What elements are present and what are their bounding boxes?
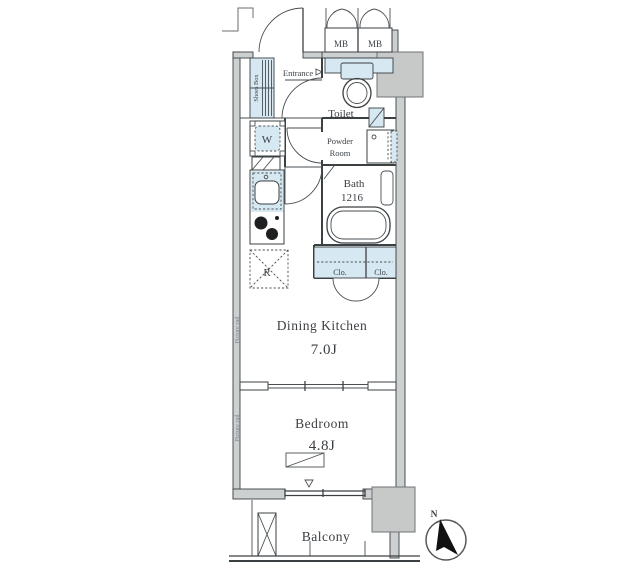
room-dining-kitchen: Dining Kitchen 7.0J — [277, 318, 368, 358]
front-door-swing-arc — [259, 8, 303, 52]
dining-kitchen-area-label: 7.0J — [311, 342, 338, 358]
bedroom-label: Bedroom — [295, 416, 349, 431]
powder-room: Powder Room — [327, 130, 397, 163]
closet-door-arc — [333, 278, 356, 301]
pillar-bottom-right — [372, 487, 415, 532]
hall-door-arc — [285, 167, 322, 204]
closet-door-arc — [356, 278, 379, 301]
balcony-partition-box — [258, 513, 276, 556]
washing-machine: W — [250, 121, 285, 156]
meter-box-right-label: MB — [368, 39, 382, 49]
meter-box-left-label: MB — [334, 39, 348, 49]
bath-counter — [381, 171, 393, 205]
kitchen-counter — [250, 170, 284, 244]
toilet-door-arc — [282, 78, 322, 118]
compass-north-label: N — [431, 510, 438, 520]
sliding-partition — [240, 381, 396, 391]
closet-right-label: Clo. — [374, 268, 388, 277]
kitchen-sink — [255, 181, 279, 204]
bath-label: Bath — [344, 178, 365, 190]
floor-plan-image: Entrance MB MB — [0, 0, 640, 569]
bath-door-leaf — [324, 166, 334, 179]
pipe-space-box — [252, 157, 280, 170]
closet-area: Clo. Clo. — [314, 247, 396, 301]
powder-door-arc — [287, 128, 322, 163]
powder-room-label-1: Powder — [327, 136, 353, 146]
bathroom: Bath 1216 — [327, 171, 393, 243]
washing-machine-label: W — [262, 134, 273, 146]
toilet-label: Toilet — [328, 108, 354, 120]
closet-left-label: Clo. — [333, 268, 347, 277]
bedroom-area-label: 4.8J — [309, 438, 336, 454]
refrigerator-space: R — [250, 250, 288, 288]
meter-box-area: MB MB — [325, 8, 392, 52]
mb-door-arc — [374, 9, 389, 28]
dining-kitchen-label: Dining Kitchen — [277, 318, 368, 333]
room-bedroom: Bedroom 4.8J — [286, 416, 349, 467]
shoes-box: Shoes Box — [250, 58, 274, 118]
vanity-counter — [367, 130, 394, 163]
mb-door-arc — [342, 9, 357, 28]
bedroom-window — [285, 480, 365, 497]
powder-room-label-2: Room — [330, 148, 351, 158]
refrigerator-label: R — [263, 267, 271, 279]
bath-size-label: 1216 — [341, 192, 364, 204]
toilet-tank — [341, 63, 373, 79]
picture-rail-lower-label: Picture rail — [234, 414, 241, 442]
shaft-box — [369, 108, 384, 127]
mb-door-arc — [327, 9, 342, 28]
window-marker-icon — [305, 480, 313, 487]
compass: N — [426, 510, 466, 560]
compass-needle-icon — [436, 519, 458, 555]
bedroom-counter — [286, 453, 324, 467]
mb-door-arc — [360, 9, 374, 28]
picture-rail-upper-label: Picture rail — [234, 316, 241, 344]
exterior-outline-lines — [222, 8, 253, 31]
shoes-box-label: Shoes Box — [253, 74, 260, 102]
entrance-label: Entrance — [283, 68, 313, 78]
balcony-label: Balcony — [302, 529, 351, 544]
floor-plan-page: Entrance MB MB — [0, 0, 640, 569]
